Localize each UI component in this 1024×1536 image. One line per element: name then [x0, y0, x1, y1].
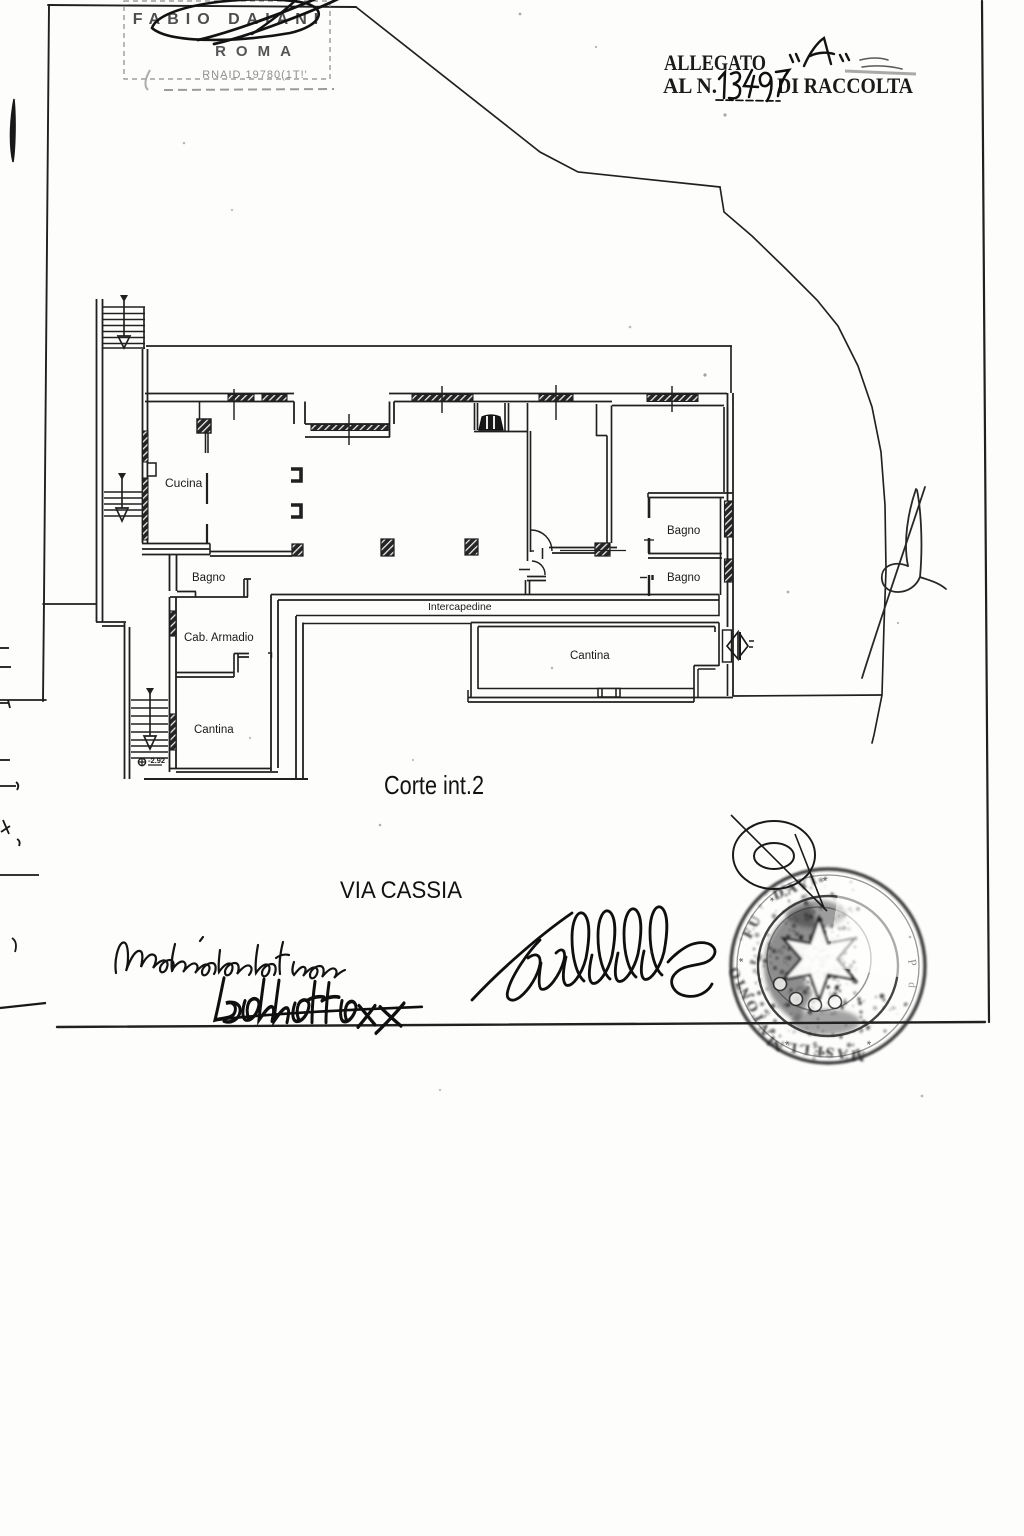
svg-text:Bagno: Bagno [192, 572, 225, 584]
svg-text:*: * [862, 1034, 873, 1049]
svg-text:RNAID 19780(1T!': RNAID 19780(1T!' [202, 69, 308, 81]
svg-text:Bagno: Bagno [667, 525, 700, 537]
svg-text:ROMA: ROMA [215, 43, 301, 60]
svg-text:DI RACCOLTA: DI RACCOLTA [777, 73, 913, 98]
svg-text:MASELLA: MASELLA [769, 1037, 865, 1064]
svg-text:d: d [905, 982, 917, 989]
svg-text:Cucina: Cucina [165, 476, 203, 490]
svg-text:Corte int.2: Corte int.2 [384, 770, 484, 800]
svg-text:Cantina: Cantina [570, 650, 610, 662]
svg-text:*: * [822, 874, 827, 888]
svg-text:Cantina: Cantina [194, 724, 234, 736]
svg-text:VIA CASSIA: VIA CASSIA [340, 877, 462, 904]
svg-text:FABIO DAIANI: FABIO DAIANI [133, 11, 325, 28]
svg-text:Cab. Armadio: Cab. Armadio [184, 632, 254, 644]
svg-text:Bagno: Bagno [667, 572, 700, 584]
svg-text:Intercapedine: Intercapedine [428, 601, 492, 613]
svg-text:AL N.: AL N. [663, 73, 717, 98]
svg-text:*: * [736, 957, 750, 963]
svg-text:-2.92: -2.92 [148, 756, 165, 765]
